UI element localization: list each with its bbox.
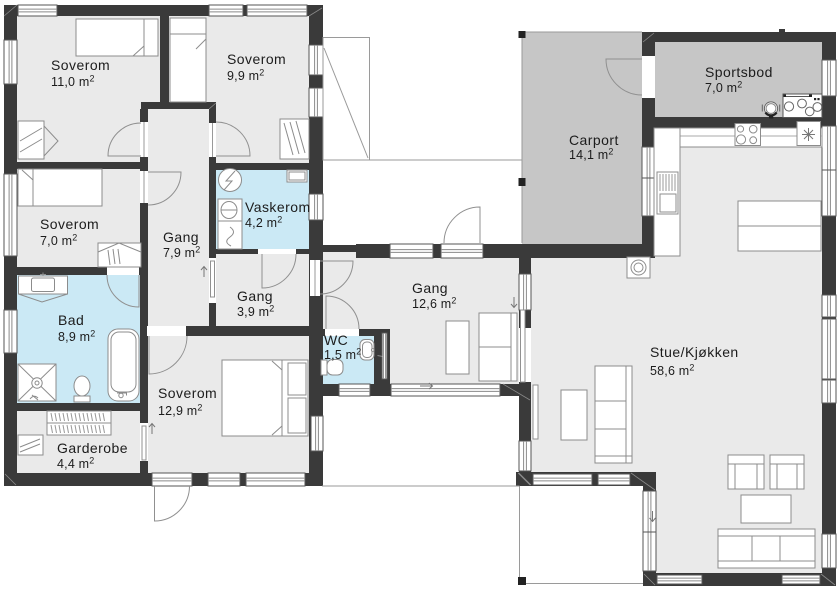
svg-text:9,9 m2: 9,9 m2 [227,68,264,84]
svg-text:Gang: Gang [412,280,448,296]
svg-text:12,6 m2: 12,6 m2 [412,296,457,312]
svg-text:4,2 m2: 4,2 m2 [245,215,282,231]
svg-text:Soverom: Soverom [227,51,286,67]
svg-text:12,9 m2: 12,9 m2 [158,403,203,419]
svg-text:Soverom: Soverom [40,216,99,232]
svg-text:Vaskerom: Vaskerom [245,199,311,215]
svg-text:Bad: Bad [58,312,84,328]
svg-text:Gang: Gang [237,288,273,304]
svg-text:7,0 m2: 7,0 m2 [40,233,77,249]
svg-text:8,9 m2: 8,9 m2 [58,329,95,345]
svg-text:WC: WC [324,332,348,348]
svg-text:11,0 m2: 11,0 m2 [51,74,95,90]
svg-text:14,1 m2: 14,1 m2 [569,147,614,163]
svg-text:1,5 m2: 1,5 m2 [324,347,361,363]
svg-text:4,4 m2: 4,4 m2 [57,456,94,472]
svg-text:3,9 m2: 3,9 m2 [237,304,274,320]
svg-text:Stue/Kjøkken: Stue/Kjøkken [650,344,739,360]
svg-text:Soverom: Soverom [158,385,217,401]
svg-text:7,0 m2: 7,0 m2 [705,80,742,96]
svg-text:Soverom: Soverom [51,57,110,73]
svg-text:Gang: Gang [163,229,199,245]
svg-text:Sportsbod: Sportsbod [705,64,773,80]
svg-text:58,6 m2: 58,6 m2 [650,363,695,379]
svg-text:Garderobe: Garderobe [57,440,128,456]
svg-text:7,9 m2: 7,9 m2 [163,245,200,261]
